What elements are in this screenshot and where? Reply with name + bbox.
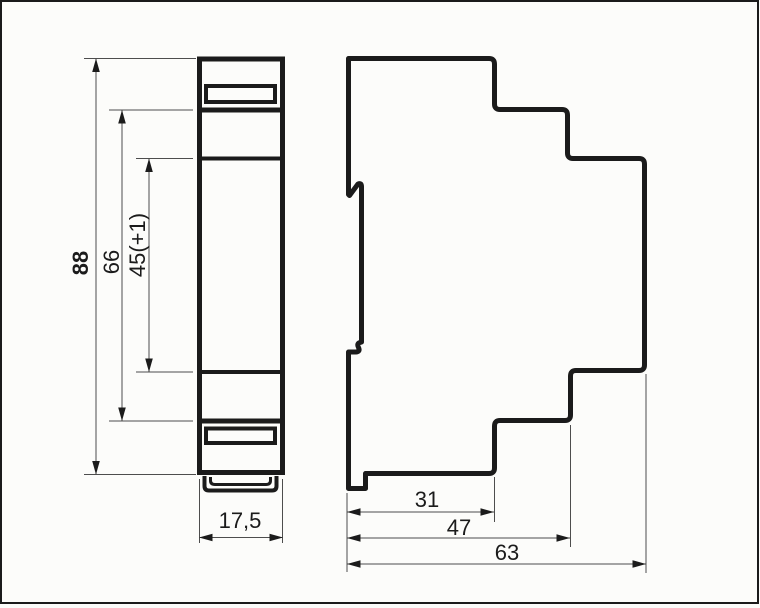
dim-label-overall-depth: 63: [495, 542, 519, 564]
arrow-66-down: [118, 408, 126, 422]
dimension-arrows: [92, 59, 646, 568]
arrow-66-up: [118, 110, 126, 124]
dim-label-rail-depth: 31: [415, 489, 439, 511]
dim-label-upper-section-height: 66: [101, 250, 123, 274]
dim-label-module-width: 17,5: [219, 510, 262, 532]
arrow-31-left: [347, 508, 361, 516]
arrow-17-5-left: [199, 534, 213, 542]
side-view-outline: [349, 59, 645, 489]
arrow-47-right: [557, 534, 571, 542]
front-view: [197, 59, 285, 491]
arrow-88-up: [92, 59, 100, 73]
arrow-63-left: [347, 560, 361, 568]
terminal-window: [206, 429, 275, 444]
arrow-47-left: [347, 534, 361, 542]
drawing-canvas: [0, 0, 760, 608]
bottom-clip-inner: [211, 477, 271, 485]
arrow-17-5-right: [270, 534, 284, 542]
side-view: [349, 59, 645, 489]
arrow-45-up: [145, 159, 153, 173]
dim-label-overall-height: 88: [70, 251, 92, 275]
arrow-45-down: [145, 359, 153, 373]
arrow-31-right: [481, 508, 495, 516]
dim-label-module-height: 45(+1): [127, 213, 149, 277]
drawing-page: 88 66 45(+1) 17,5 31 47 63: [0, 0, 760, 608]
arrow-88-down: [92, 461, 100, 475]
dim-label-mid-depth: 47: [447, 517, 471, 539]
front-view-outline: [200, 59, 283, 473]
label-window: [206, 86, 275, 102]
arrow-63-right: [633, 560, 647, 568]
dimension-lines: [84, 59, 646, 574]
